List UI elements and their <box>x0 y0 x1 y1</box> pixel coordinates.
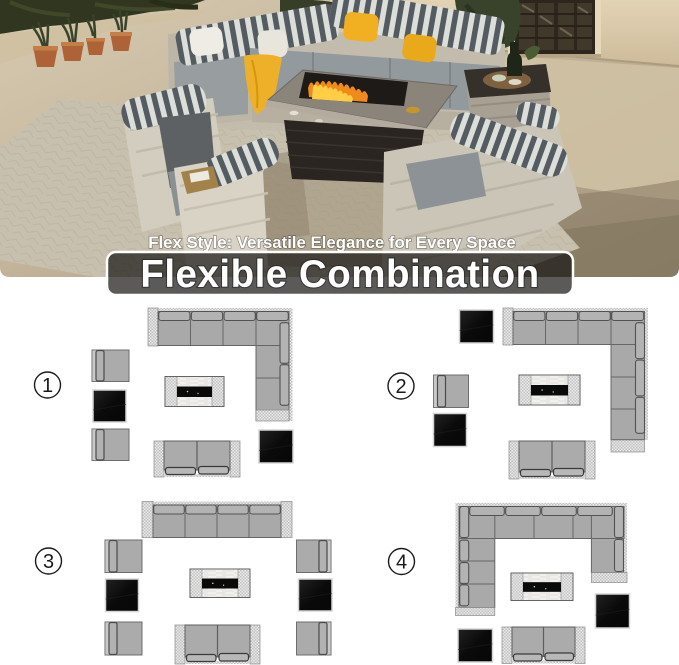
svg-text:4: 4 <box>396 552 407 574</box>
svg-text:3: 3 <box>43 551 54 573</box>
svg-text:Flex Style: Versatile Elegance: Flex Style: Versatile Elegance for Every… <box>148 233 516 252</box>
svg-text:1: 1 <box>42 375 53 397</box>
svg-text:2: 2 <box>395 376 406 398</box>
svg-text:Flexible Combination: Flexible Combination <box>140 253 539 296</box>
